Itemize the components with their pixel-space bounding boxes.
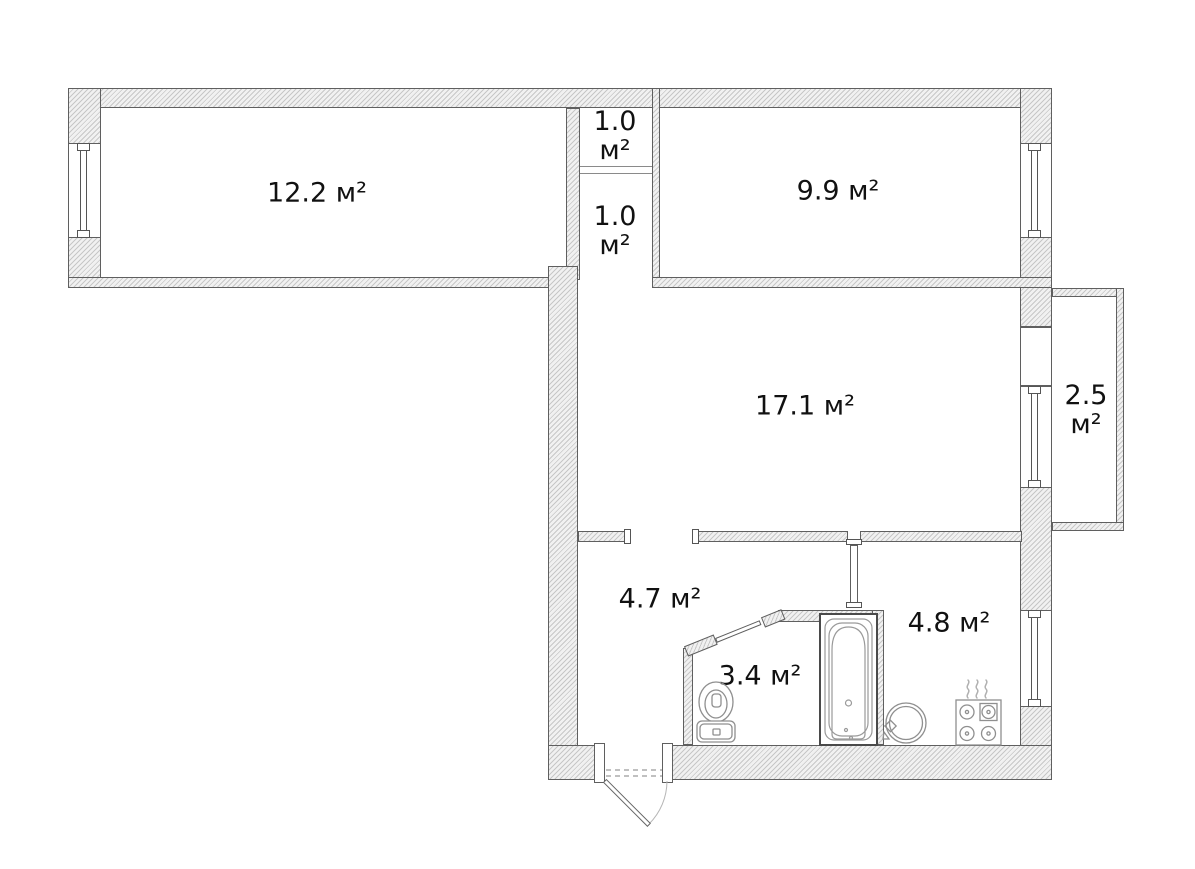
window-right-frame: [1031, 145, 1038, 236]
wall-bathroom-kitchen: [872, 610, 884, 745]
closet-lower-unit: м²: [594, 231, 637, 260]
wall-room1-right: [566, 108, 580, 280]
wall-between-top-rooms: [652, 277, 1052, 288]
wall-right-above-window: [1020, 88, 1052, 145]
wall-right-mid-lower: [1020, 486, 1052, 612]
bathtub-icon: [820, 614, 877, 745]
entrance-door-icon: [604, 770, 667, 826]
balcony-label: 2.5 м²: [1065, 381, 1108, 439]
window-left-cap-top: [77, 143, 90, 151]
wall-left-above-window: [68, 88, 101, 145]
closet-upper-label: 1.0 м²: [594, 107, 637, 165]
window-right-cap-bottom: [1028, 230, 1041, 238]
wall-top: [68, 88, 1050, 108]
stove-icon: [956, 700, 1001, 745]
closet-upper-value: 1.0: [594, 107, 637, 136]
steam-icon: [967, 680, 987, 698]
main-opening-cap-right: [692, 529, 699, 544]
kitchen-door-leaf: [850, 545, 858, 604]
room-top-left-label: 12.2 м²: [267, 178, 367, 207]
wall-balcony-top: [1052, 288, 1124, 297]
wall-main-bottom-a: [578, 531, 630, 542]
window-kitchen-cap-bottom: [1028, 699, 1041, 707]
kitchen-label: 4.8 м²: [908, 608, 991, 637]
room-top-right-label: 9.9 м²: [797, 176, 880, 205]
main-opening-cap-left: [624, 529, 631, 544]
window-left-cap-bottom: [77, 230, 90, 238]
wall-main-bottom-c: [860, 531, 1022, 542]
wall-balcony-right: [1116, 288, 1124, 531]
room-main-label: 17.1 м²: [755, 391, 855, 420]
window-balcony-cap-bottom: [1028, 480, 1041, 488]
floor-plan: 12.2 м² 1.0 м² 1.0 м² 9.9 м² 17.1 м² 2.5…: [0, 0, 1195, 869]
hallway-label: 4.7 м²: [619, 584, 702, 613]
balcony-door-opening: [1020, 327, 1052, 386]
wall-balcony-bottom: [1052, 522, 1124, 531]
closet-upper-unit: м²: [594, 136, 637, 165]
kitchen-door-cap-bottom: [846, 602, 862, 608]
bathroom-label: 3.4 м²: [719, 661, 802, 690]
sink-icon: [883, 703, 926, 743]
wall-bathroom-diagonal-upper: [761, 609, 786, 627]
entrance-jamb-left: [594, 743, 605, 783]
window-right-cap-top: [1028, 143, 1041, 151]
bathroom-door-leaf: [715, 620, 761, 643]
wall-bathroom-diagonal-lower: [684, 634, 718, 656]
window-kitchen-frame: [1031, 612, 1038, 703]
closet-divider: [580, 166, 652, 174]
closet-lower-label: 1.0 м²: [594, 202, 637, 260]
wall-room1-bottom: [68, 277, 558, 288]
wall-bottom-right-of-door: [668, 745, 1052, 780]
window-balcony-frame: [1031, 388, 1038, 484]
closet-lower-value: 1.0: [594, 202, 637, 231]
wall-main-bottom-b: [693, 531, 848, 542]
wall-corridor-left: [548, 266, 578, 780]
balcony-value: 2.5: [1065, 381, 1108, 410]
wall-closets-right: [652, 88, 660, 285]
balcony-unit: м²: [1065, 410, 1108, 439]
wall-bathroom-top: [778, 610, 884, 622]
wall-bathroom-left: [683, 648, 693, 745]
window-kitchen-cap-top: [1028, 610, 1041, 618]
wall-bottom-left-of-door: [548, 745, 597, 780]
window-left-frame: [80, 145, 87, 236]
entrance-jamb-right: [662, 743, 673, 783]
window-balcony-cap-top: [1028, 386, 1041, 394]
